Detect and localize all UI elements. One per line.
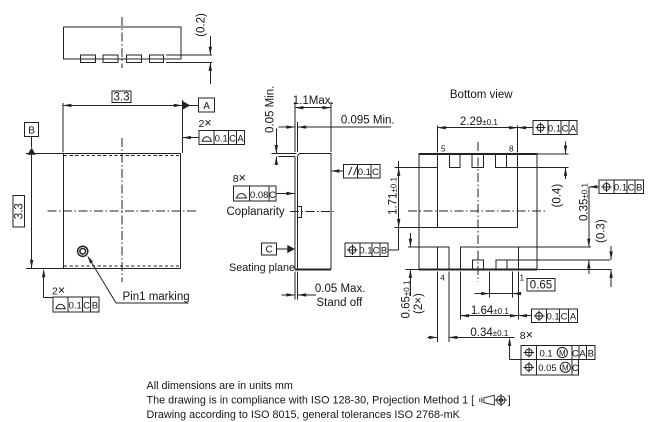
- svg-text:0.1: 0.1: [69, 300, 82, 311]
- svg-text:3.3: 3.3: [13, 203, 25, 219]
- svg-text:0.1: 0.1: [540, 348, 553, 359]
- svg-text:1.71±0.1: 1.71±0.1: [388, 177, 400, 215]
- svg-text:A: A: [570, 123, 577, 134]
- svg-text:The drawing is in compliance w: The drawing is in compliance with ISO 12…: [147, 395, 475, 407]
- svg-text:8×: 8×: [233, 171, 246, 185]
- svg-text:M: M: [559, 349, 566, 358]
- svg-text:0.1: 0.1: [614, 183, 627, 194]
- svg-text:B: B: [381, 246, 387, 257]
- svg-text:C: C: [265, 245, 272, 256]
- svg-text:0.1: 0.1: [215, 134, 228, 145]
- svg-text:2×: 2×: [52, 284, 65, 298]
- svg-text:B: B: [588, 348, 594, 359]
- svg-text:A: A: [570, 312, 577, 323]
- svg-text:Seating plane: Seating plane: [229, 262, 295, 274]
- svg-text:4: 4: [440, 274, 445, 283]
- svg-text:0.05 Min.: 0.05 Min.: [264, 86, 276, 133]
- svg-text:All dimensions are in units mm: All dimensions are in units mm: [147, 380, 293, 392]
- svg-text:8: 8: [509, 145, 514, 154]
- svg-text:C: C: [562, 123, 569, 134]
- svg-text:C: C: [372, 167, 379, 178]
- svg-text:2×: 2×: [199, 116, 212, 130]
- svg-text:C: C: [561, 312, 568, 323]
- svg-text:0.1: 0.1: [358, 167, 371, 178]
- svg-text:A: A: [579, 348, 586, 359]
- svg-text:0.095 Min.: 0.095 Min.: [341, 115, 395, 127]
- svg-text:(0.3): (0.3): [596, 219, 608, 243]
- svg-text:5: 5: [441, 145, 446, 154]
- svg-text:C: C: [373, 246, 380, 257]
- svg-text:0.35±0.1: 0.35±0.1: [579, 183, 591, 221]
- svg-text:8×: 8×: [520, 328, 533, 342]
- svg-text:1.1Max.: 1.1Max.: [293, 95, 334, 107]
- svg-text:0.08: 0.08: [250, 190, 269, 201]
- svg-text:B: B: [28, 126, 35, 137]
- svg-text:3.3: 3.3: [114, 92, 130, 104]
- svg-text:(2×): (2×): [413, 293, 425, 314]
- svg-text:A: A: [237, 134, 244, 145]
- svg-text:2.29±0.1: 2.29±0.1: [460, 116, 498, 128]
- svg-text:C: C: [628, 183, 635, 194]
- svg-text:C: C: [572, 363, 579, 374]
- svg-text:0.1: 0.1: [548, 123, 561, 134]
- svg-text:Stand off: Stand off: [317, 297, 364, 309]
- svg-text:1: 1: [520, 274, 525, 283]
- svg-text:0.65: 0.65: [530, 280, 552, 292]
- svg-text:]: ]: [508, 395, 511, 407]
- svg-text:A: A: [203, 101, 210, 112]
- svg-text:Bottom view: Bottom view: [450, 89, 513, 101]
- svg-text:0.34±0.1: 0.34±0.1: [470, 327, 508, 339]
- svg-text:0.1: 0.1: [546, 312, 559, 323]
- svg-text:B: B: [636, 183, 642, 194]
- svg-text:(0.2): (0.2): [196, 13, 208, 37]
- svg-text:(0.4): (0.4): [551, 184, 563, 208]
- svg-text:0.65±0.1: 0.65±0.1: [400, 280, 412, 318]
- svg-text:M: M: [562, 364, 569, 373]
- svg-text:Coplanarity: Coplanarity: [227, 206, 285, 218]
- svg-text:Drawing according to ISO 8015,: Drawing according to ISO 8015, general t…: [147, 409, 461, 421]
- svg-text:C: C: [229, 134, 236, 145]
- svg-text:C: C: [83, 300, 90, 311]
- svg-text:1.64±0.1: 1.64±0.1: [471, 305, 509, 317]
- svg-text:C: C: [572, 348, 579, 359]
- svg-text:0.1: 0.1: [359, 246, 372, 257]
- svg-text:0.05: 0.05: [538, 363, 557, 374]
- svg-text:C: C: [269, 190, 276, 201]
- svg-text:Pin1 marking: Pin1 marking: [123, 291, 190, 303]
- svg-text:0.05 Max.: 0.05 Max.: [315, 283, 366, 295]
- svg-text:B: B: [92, 300, 98, 311]
